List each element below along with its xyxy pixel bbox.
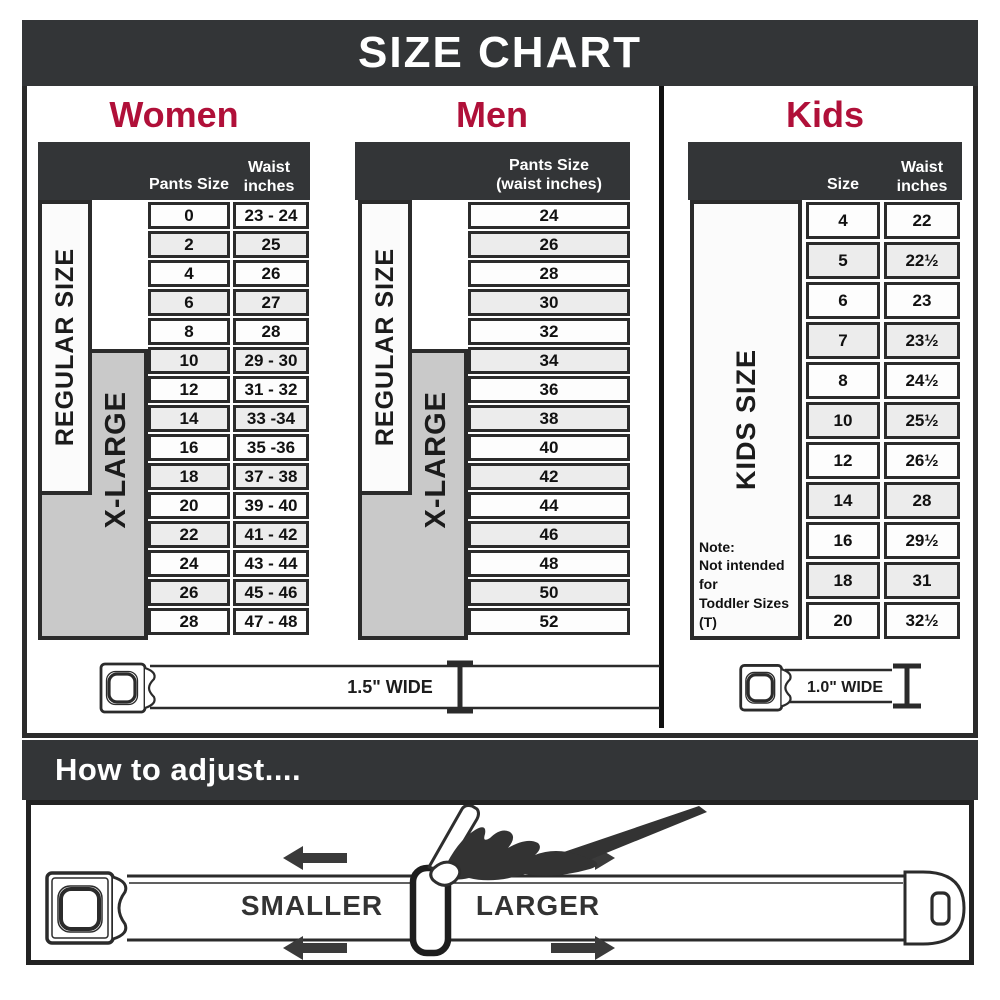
size-cell: 28: [148, 608, 230, 635]
women-table-header: Pants Size Waist inches: [38, 142, 310, 200]
adult-belt-width-label: 1.5" WIDE: [320, 677, 460, 698]
table-row: 2039 - 40: [148, 492, 309, 519]
table-row: 42: [468, 463, 630, 490]
table-row: 2241 - 42: [148, 521, 309, 548]
size-cell: 32½: [884, 602, 960, 639]
table-row: 023 - 24: [148, 202, 309, 229]
table-row: 1837 - 38: [148, 463, 309, 490]
size-cell: 35 -36: [233, 434, 309, 461]
size-cell: 22: [148, 521, 230, 548]
width-measure-icon: [893, 666, 921, 706]
size-cell: 18: [148, 463, 230, 490]
table-row: 50: [468, 579, 630, 606]
table-row: 48: [468, 550, 630, 577]
table-row: 1831: [806, 562, 960, 599]
seatbelt-buckle-icon: [741, 665, 791, 710]
size-cell: 14: [148, 405, 230, 432]
size-cell: 43 - 44: [233, 550, 309, 577]
size-cell: 36: [468, 376, 630, 403]
adjust-belt-illustration: [31, 805, 969, 960]
table-row: 422: [806, 202, 960, 239]
size-cell: 14: [806, 482, 880, 519]
table-row: 24: [468, 202, 630, 229]
men-heading: Men: [392, 94, 592, 136]
kids-col1-header: Size: [806, 176, 880, 194]
size-cell: 28: [468, 260, 630, 287]
table-row: 426: [148, 260, 309, 287]
size-cell: 8: [806, 362, 880, 399]
table-row: 2847 - 48: [148, 608, 309, 635]
kids-note-line2: Not intended for: [699, 557, 785, 592]
kids-size-label: KIDS SIZE: [731, 349, 762, 490]
table-row: 32: [468, 318, 630, 345]
adjust-heading: How to adjust....: [55, 752, 301, 788]
women-regular-band: REGULAR SIZE: [38, 200, 92, 495]
table-row: 44: [468, 492, 630, 519]
men-col-header-line2: (waist inches): [496, 176, 602, 193]
size-cell: 46: [468, 521, 630, 548]
table-row: 1635 -36: [148, 434, 309, 461]
kids-note: Note: Not intended for Toddler Sizes (T): [699, 538, 798, 632]
table-row: 623: [806, 282, 960, 319]
table-row: 40: [468, 434, 630, 461]
size-cell: 12: [806, 442, 880, 479]
table-row: 28: [468, 260, 630, 287]
size-cell: 26: [148, 579, 230, 606]
women-col1-header: Pants Size: [148, 176, 230, 194]
table-row: 1025½: [806, 402, 960, 439]
women-xlarge-label: X-LARGE: [100, 391, 133, 529]
size-cell: 24: [468, 202, 630, 229]
size-cell: 20: [806, 602, 880, 639]
size-cell: 16: [806, 522, 880, 559]
arrow-left-icon: [283, 846, 347, 870]
size-cell: 26: [233, 260, 309, 287]
size-cell: 38: [468, 405, 630, 432]
adjust-banner: How to adjust....: [22, 740, 978, 800]
table-row: 1029 - 30: [148, 347, 309, 374]
table-row: 1428: [806, 482, 960, 519]
size-cell: 24: [148, 550, 230, 577]
size-cell: 25½: [884, 402, 960, 439]
table-row: 52: [468, 608, 630, 635]
size-cell: 41 - 42: [233, 521, 309, 548]
table-row: 2645 - 46: [148, 579, 309, 606]
size-cell: 47 - 48: [233, 608, 309, 635]
size-cell: 24½: [884, 362, 960, 399]
kids-note-line1: Note:: [699, 539, 735, 555]
size-cell: 8: [148, 318, 230, 345]
size-cell: 20: [148, 492, 230, 519]
size-cell: 27: [233, 289, 309, 316]
size-cell: 10: [148, 347, 230, 374]
men-regular-band: REGULAR SIZE: [358, 200, 412, 495]
women-regular-label: REGULAR SIZE: [51, 248, 80, 446]
men-size-rows: 242628303234363840424446485052: [468, 202, 630, 637]
size-cell: 50: [468, 579, 630, 606]
seatbelt-buckle-icon: [101, 664, 155, 712]
table-row: 38: [468, 405, 630, 432]
size-cell: 10: [806, 402, 880, 439]
size-cell: 28: [233, 318, 309, 345]
size-cell: 23: [884, 282, 960, 319]
size-cell: 25: [233, 231, 309, 258]
size-cell: 45 - 46: [233, 579, 309, 606]
table-row: 828: [148, 318, 309, 345]
title-banner: SIZE CHART: [22, 20, 978, 86]
adjust-illustration-panel: SMALLER LARGER: [26, 800, 974, 965]
size-cell: 5: [806, 242, 880, 279]
table-row: 46: [468, 521, 630, 548]
size-cell: 31: [884, 562, 960, 599]
size-cell: 26½: [884, 442, 960, 479]
hand-illustration: [429, 805, 707, 885]
kids-note-line3: Toddler Sizes (T): [699, 595, 789, 630]
table-row: 2443 - 44: [148, 550, 309, 577]
women-heading: Women: [74, 94, 274, 136]
kids-heading: Kids: [725, 94, 925, 136]
size-cell: 18: [806, 562, 880, 599]
size-cell: 22½: [884, 242, 960, 279]
size-cell: 40: [468, 434, 630, 461]
size-cell: 31 - 32: [233, 376, 309, 403]
panel-divider: [659, 86, 664, 728]
men-col-header-line1: Pants Size: [509, 157, 589, 174]
seatbelt-buckle-icon: [47, 873, 126, 943]
size-cell: 4: [806, 202, 880, 239]
size-cell: 0: [148, 202, 230, 229]
table-row: 627: [148, 289, 309, 316]
size-cell: 39 - 40: [233, 492, 309, 519]
size-cell: 6: [806, 282, 880, 319]
table-row: 522½: [806, 242, 960, 279]
table-row: 824½: [806, 362, 960, 399]
page-title: SIZE CHART: [358, 28, 642, 78]
table-row: 225: [148, 231, 309, 258]
kids-col2-header: Waist inches: [886, 159, 958, 196]
belt-tip: [905, 872, 964, 944]
men-xlarge-label: X-LARGE: [420, 391, 453, 529]
size-cell: 2: [148, 231, 230, 258]
table-row: 1231 - 32: [148, 376, 309, 403]
table-row: 1629½: [806, 522, 960, 559]
size-cell: 12: [148, 376, 230, 403]
size-cell: 26: [468, 231, 630, 258]
size-cell: 32: [468, 318, 630, 345]
size-tables-panel: Women Men Kids Pants Size Waist inches X…: [22, 86, 978, 738]
table-row: 1226½: [806, 442, 960, 479]
size-cell: 30: [468, 289, 630, 316]
table-row: 36: [468, 376, 630, 403]
men-regular-label: REGULAR SIZE: [371, 248, 400, 446]
women-col2-header: Waist inches: [232, 159, 306, 196]
size-cell: 33 -34: [233, 405, 309, 432]
women-size-rows: 023 - 242254266278281029 - 301231 - 3214…: [148, 202, 309, 637]
size-cell: 44: [468, 492, 630, 519]
size-chart-infographic: SIZE CHART Women Men Kids Pants Size Wai…: [0, 0, 1000, 1000]
kids-table-header: Size Waist inches: [688, 142, 962, 200]
size-cell: 7: [806, 322, 880, 359]
kids-size-band: KIDS SIZE Note: Not intended for Toddler…: [690, 200, 802, 640]
size-cell: 34: [468, 347, 630, 374]
kids-size-rows: 422522½623723½824½1025½1226½14281629½183…: [806, 202, 960, 642]
table-row: 30: [468, 289, 630, 316]
size-cell: 4: [148, 260, 230, 287]
table-row: 26: [468, 231, 630, 258]
table-row: 723½: [806, 322, 960, 359]
size-cell: 6: [148, 289, 230, 316]
table-row: 2032½: [806, 602, 960, 639]
size-cell: 23 - 24: [233, 202, 309, 229]
size-cell: 22: [884, 202, 960, 239]
size-cell: 37 - 38: [233, 463, 309, 490]
size-cell: 16: [148, 434, 230, 461]
table-row: 34: [468, 347, 630, 374]
smaller-label: SMALLER: [202, 890, 422, 922]
size-cell: 29 - 30: [233, 347, 309, 374]
size-cell: 29½: [884, 522, 960, 559]
kids-belt-width-label: 1.0" WIDE: [795, 679, 895, 697]
men-col-header: Pants Size (waist inches): [468, 157, 630, 194]
table-row: 1433 -34: [148, 405, 309, 432]
size-cell: 23½: [884, 322, 960, 359]
size-cell: 52: [468, 608, 630, 635]
men-table-header: Pants Size (waist inches): [355, 142, 630, 200]
size-cell: 48: [468, 550, 630, 577]
size-cell: 28: [884, 482, 960, 519]
larger-label: LARGER: [448, 890, 628, 922]
size-cell: 42: [468, 463, 630, 490]
